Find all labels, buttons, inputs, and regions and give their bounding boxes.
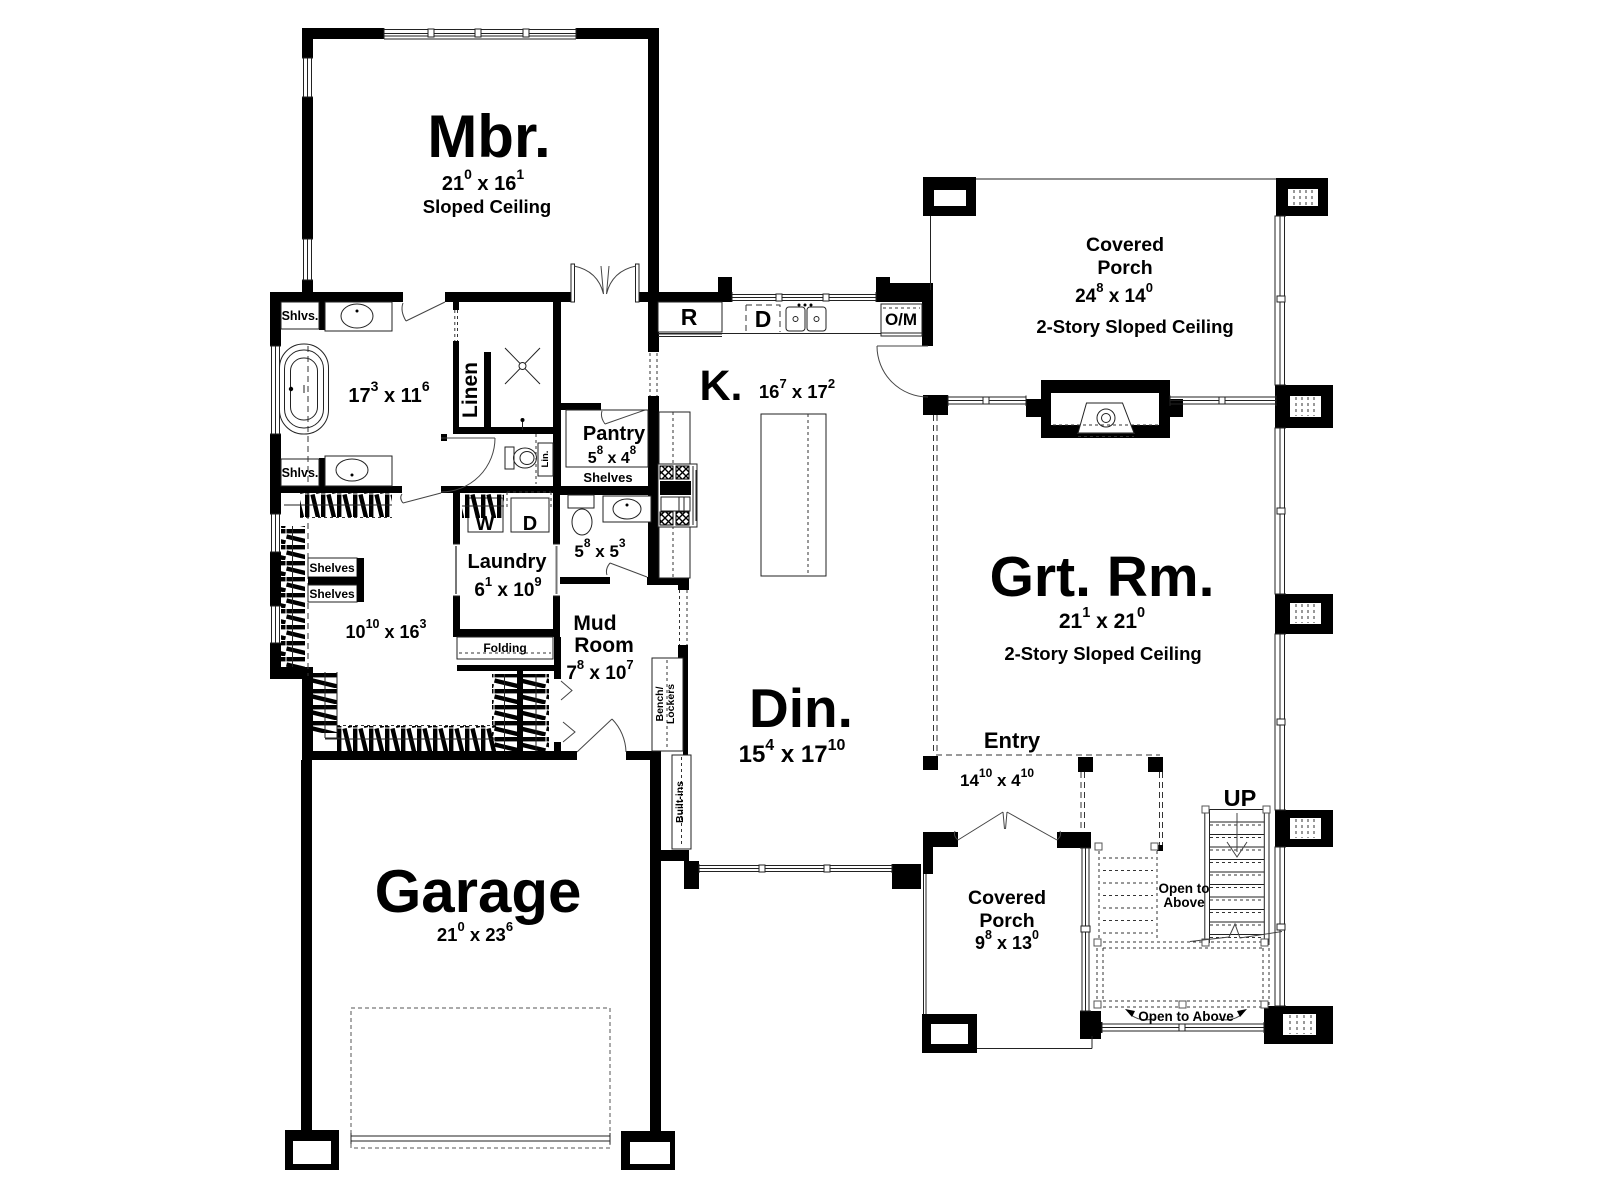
svg-text:D: D: [755, 306, 772, 332]
svg-text:Mud: Mud: [573, 612, 616, 635]
svg-text:Open to Above: Open to Above: [1138, 1009, 1234, 1024]
svg-text:Grt. Rm.: Grt. Rm.: [990, 545, 1215, 609]
svg-text:Shelves: Shelves: [583, 470, 632, 485]
svg-text:O/M: O/M: [885, 310, 917, 329]
svg-text:Shlvs.: Shlvs.: [282, 309, 319, 323]
svg-text:Built-ins: Built-ins: [674, 781, 686, 823]
svg-text:Lockers: Lockers: [665, 684, 677, 724]
svg-text:D: D: [523, 513, 537, 535]
svg-text:UP: UP: [1224, 785, 1257, 811]
svg-text:Open to: Open to: [1159, 881, 1210, 896]
svg-text:Folding: Folding: [483, 641, 526, 655]
svg-text:Din.: Din.: [749, 677, 853, 739]
svg-text:W: W: [476, 513, 495, 535]
svg-text:Covered: Covered: [968, 887, 1046, 909]
svg-text:R: R: [681, 304, 698, 330]
svg-text:2-Story Sloped Ceiling: 2-Story Sloped Ceiling: [1036, 316, 1233, 337]
svg-text:Porch: Porch: [1097, 257, 1152, 279]
svg-text:Above: Above: [1163, 895, 1205, 910]
svg-text:Shlvs.: Shlvs.: [282, 466, 319, 480]
svg-text:211 x 210: 211 x 210: [1059, 605, 1145, 633]
svg-text:Sloped Ceiling: Sloped Ceiling: [423, 196, 551, 217]
svg-text:Entry: Entry: [984, 728, 1041, 753]
svg-text:Mbr.: Mbr.: [427, 103, 550, 170]
svg-text:Garage: Garage: [375, 858, 582, 925]
svg-text:Covered: Covered: [1086, 234, 1164, 256]
svg-text:Lin.: Lin.: [540, 451, 551, 468]
svg-text:Linen: Linen: [459, 362, 482, 418]
svg-text:Room: Room: [574, 634, 634, 657]
svg-text:K.: K.: [700, 362, 743, 410]
svg-text:2-Story Sloped Ceiling: 2-Story Sloped Ceiling: [1004, 643, 1201, 664]
svg-text:Laundry: Laundry: [468, 551, 548, 573]
svg-text:Shelves: Shelves: [309, 587, 355, 601]
svg-text:Shelves: Shelves: [309, 561, 355, 575]
svg-text:Pantry: Pantry: [583, 423, 646, 445]
